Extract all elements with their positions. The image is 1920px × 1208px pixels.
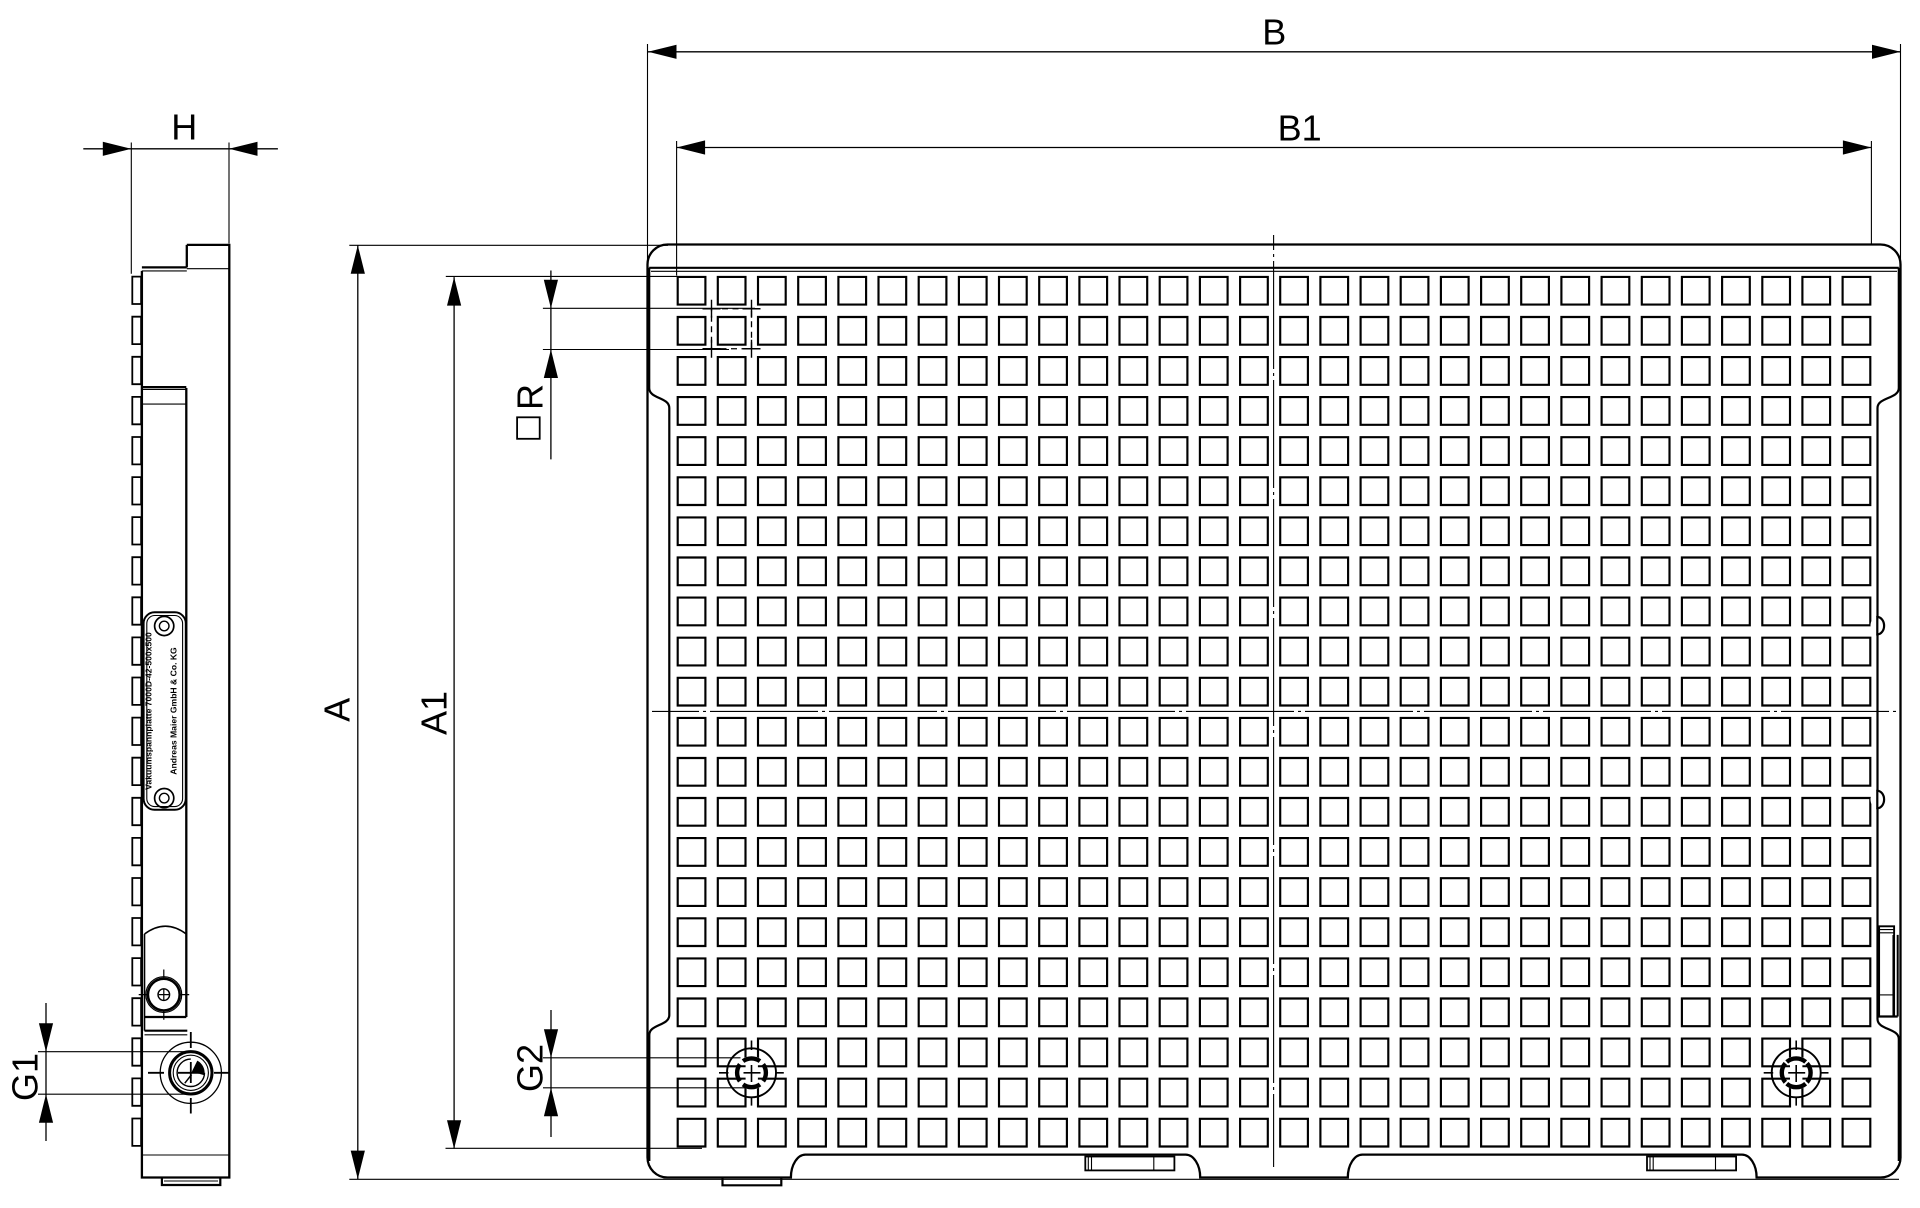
svg-text:Andreas Maier GmbH & Co. KG: Andreas Maier GmbH & Co. KG [169,647,179,775]
svg-text:A1: A1 [414,691,455,735]
svg-text:G1: G1 [5,1053,46,1101]
svg-text:Vakuumspannplatte 7000D-42-500: Vakuumspannplatte 7000D-42-500x500 [144,632,154,790]
svg-text:G2: G2 [510,1044,551,1092]
svg-text:R: R [509,384,550,410]
svg-text:H: H [171,107,197,148]
svg-text:A: A [317,698,358,722]
svg-text:B1: B1 [1278,108,1322,149]
svg-text:B: B [1262,12,1286,53]
